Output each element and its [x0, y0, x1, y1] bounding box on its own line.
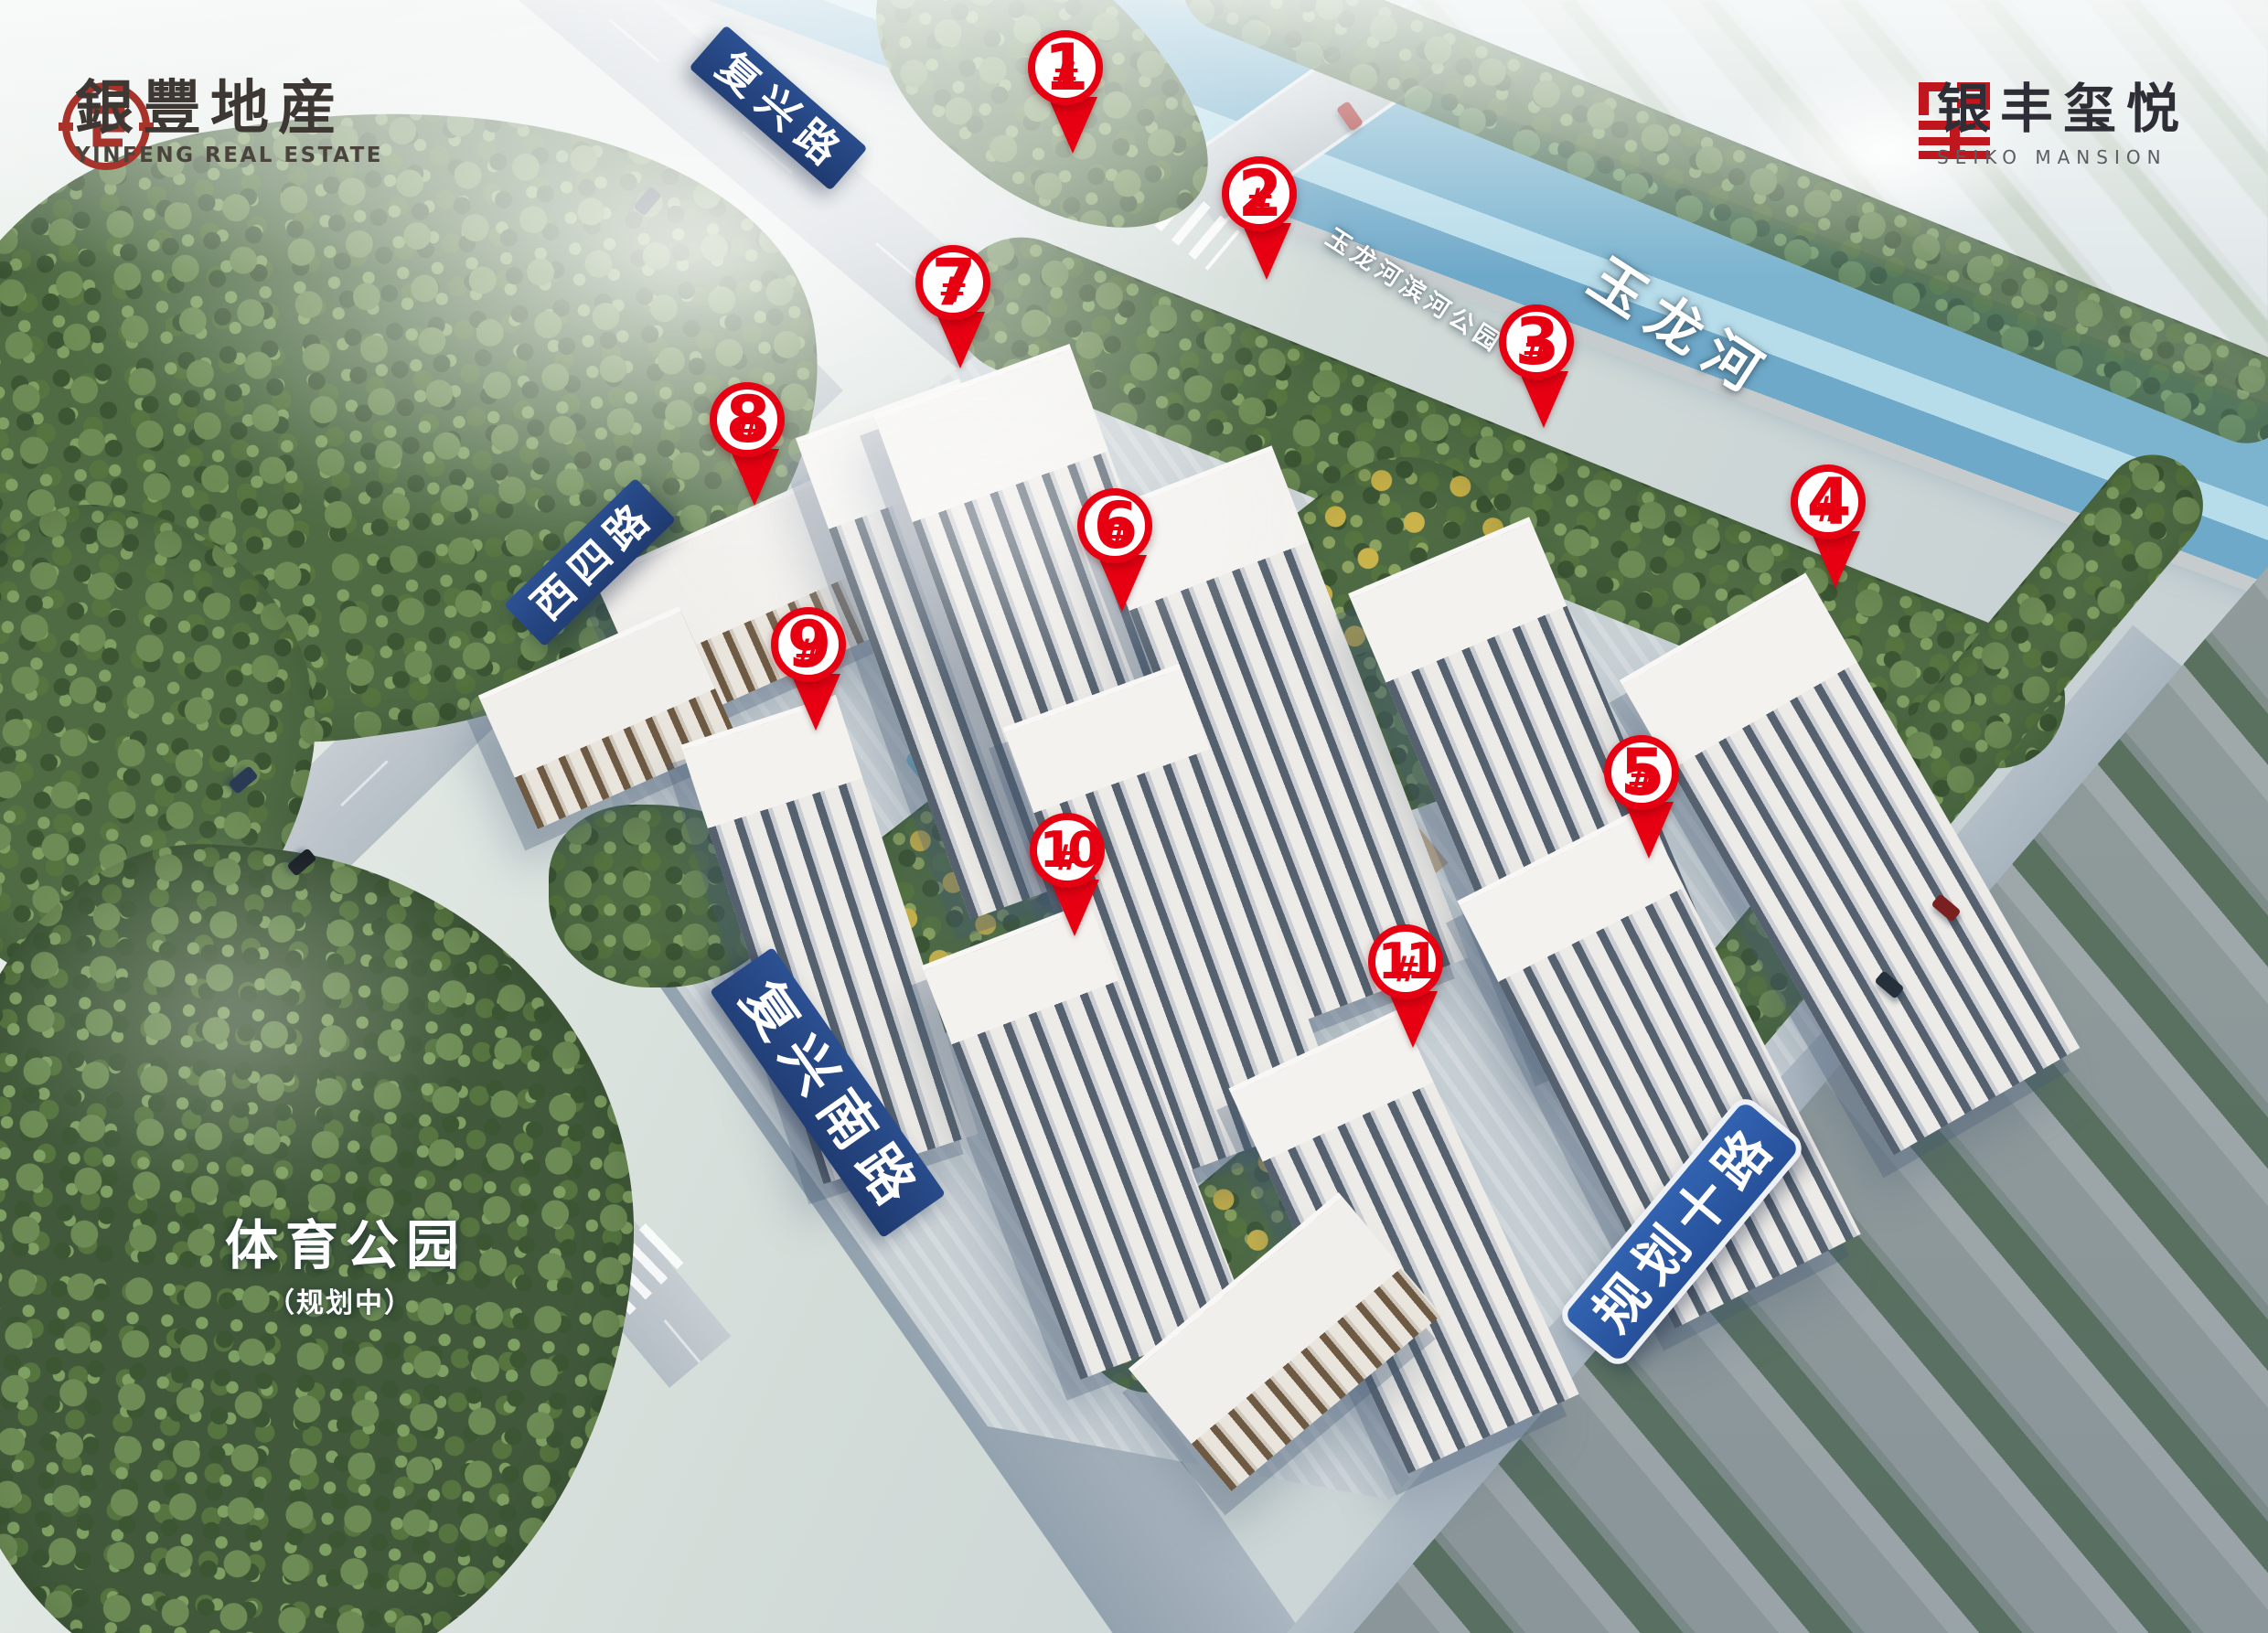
marker-hash: #	[733, 407, 762, 447]
marker-pin-tail	[791, 674, 840, 731]
road-sign-char: 西	[524, 569, 583, 627]
seiko-mansion-logo: 银丰玺悦 SEIKO MANSION	[1917, 80, 2189, 168]
marker-pin-circle: 9#	[771, 607, 846, 682]
marker-pin-tail	[730, 449, 779, 506]
marker-pin-tail	[936, 312, 985, 368]
marker-hash: #	[1813, 489, 1843, 529]
yinfeng-name-en: YINFENG REAL ESTATE	[75, 144, 383, 167]
road-sign-char: 四	[561, 533, 619, 592]
road-sign-char: 路	[847, 1137, 924, 1213]
fog-patch	[0, 823, 476, 1207]
marker-pin-circle: 7#	[915, 245, 990, 320]
sports-park-label: 体育公园	[225, 1202, 466, 1279]
marker-pin-tail	[1624, 802, 1674, 859]
road-sign-char: 兴	[749, 79, 807, 136]
marker-hash: #	[1627, 760, 1656, 800]
road-sign-char: 兴	[770, 1027, 847, 1104]
marker-pin-circle: 10#	[1030, 813, 1105, 888]
sports-park-status-label: （规划中）	[267, 1280, 413, 1320]
marker-hash: #	[794, 632, 823, 672]
road-sign-char: 复	[732, 972, 808, 1049]
marker-pin-tail	[1050, 880, 1099, 936]
marker-pin-circle: 3#	[1499, 304, 1574, 379]
marker-pin-circle: 2#	[1222, 156, 1297, 231]
marker-hash: #	[1051, 55, 1080, 95]
road-sign-char: 南	[808, 1082, 885, 1158]
marker-pin-tail	[1048, 97, 1097, 154]
marker-pin-circle: 8#	[710, 382, 785, 457]
marker-pin-tail	[1242, 223, 1291, 280]
seiko-name-cn: 银丰玺悦	[1937, 80, 2189, 139]
marker-pin-circle: 1#	[1028, 30, 1103, 105]
marker-hash: #	[1522, 329, 1551, 369]
marker-pin-circle: 4#	[1791, 464, 1866, 539]
marker-pin-tail	[1811, 531, 1860, 588]
marker-pin-tail	[1097, 555, 1147, 612]
marker-pin-circle: 5#	[1604, 735, 1679, 810]
marker-hash: #	[1245, 181, 1274, 221]
marker-pin-circle: 6#	[1077, 488, 1152, 563]
aerial-masterplan-rendering: 玉龙河 玉龙河滨河公园 体育公园 （规划中） 复兴路西四路复兴南路规划十路 1#…	[0, 0, 2268, 1633]
marker-pin-tail	[1388, 991, 1438, 1048]
road-sign-char: 路	[788, 112, 846, 170]
road-sign-char: 复	[711, 45, 768, 102]
marker-pin-circle: 11#	[1368, 924, 1443, 999]
yinfeng-name-cn: 銀豐地産	[75, 79, 383, 140]
marker-hash: #	[938, 270, 968, 310]
marker-pin-tail	[1519, 371, 1568, 428]
marker-hash: #	[1100, 513, 1129, 553]
marker-hash: #	[1053, 838, 1082, 878]
seiko-name-en: SEIKO MANSION	[1937, 146, 2189, 168]
road-sign-char: 路	[597, 498, 656, 557]
marker-hash: #	[1391, 949, 1420, 989]
yinfeng-logo: 銀豐地産 YINFENG REAL ESTATE	[59, 79, 383, 167]
